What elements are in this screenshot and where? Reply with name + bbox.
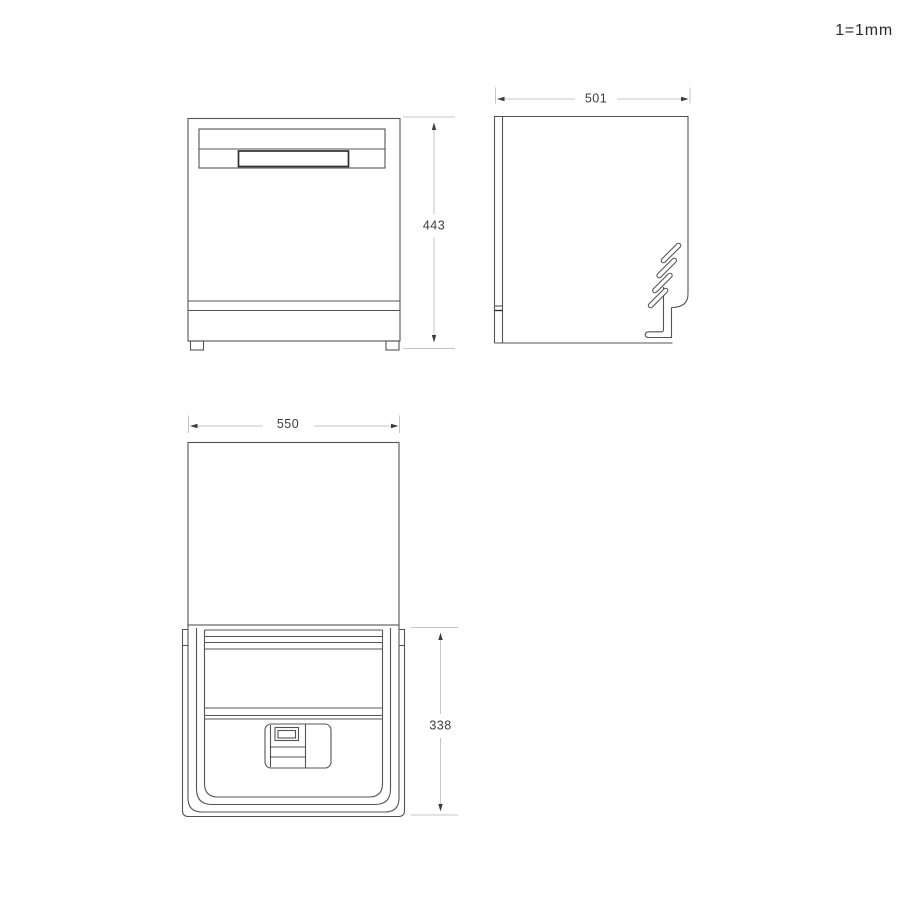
- arrow-up-icon: [432, 123, 436, 131]
- vent-slot-1-fill: [664, 246, 679, 261]
- dimension-label-door-depth: 338: [429, 718, 451, 732]
- door-handle: [239, 151, 349, 167]
- plan-body-outline: [188, 443, 399, 626]
- side-cabinet-outline: [495, 117, 689, 344]
- door-inner-panel-outline: [197, 628, 391, 805]
- door-top-edge-lines: [205, 630, 383, 649]
- top-view: [183, 443, 405, 817]
- technical-drawing-canvas: 443 501 550 338 1=1mm: [0, 0, 899, 899]
- door-open-outer-outline: [183, 630, 405, 817]
- arrow-right-icon: [681, 97, 689, 101]
- side-view: [495, 117, 689, 344]
- dimension-drawing-page: 443 501 550 338 1=1mm: [0, 0, 899, 899]
- scale-note: 1=1mm: [835, 22, 893, 39]
- door-liner-outline: [205, 630, 383, 797]
- dispenser-lid-inner: [278, 731, 296, 739]
- arrow-right-icon: [391, 424, 399, 428]
- vent-slot-2-fill: [659, 261, 674, 276]
- arrow-down-icon: [432, 335, 436, 343]
- foot-right: [386, 341, 399, 350]
- arrow-left-icon: [497, 97, 505, 101]
- dimension-label-depth: 501: [585, 91, 607, 105]
- arrow-up-icon: [438, 633, 442, 641]
- vent-slot-3-fill: [655, 276, 670, 291]
- vent-slots: [651, 246, 679, 306]
- front-cabinet-outline: [188, 119, 400, 342]
- dim-top-width: 550: [189, 416, 400, 434]
- dim-door-depth: 338: [411, 628, 459, 816]
- dimension-label-height: 443: [423, 218, 445, 232]
- dimension-label-width: 550: [277, 417, 299, 431]
- dim-side-depth: 501: [496, 88, 691, 106]
- front-view: [188, 119, 400, 351]
- detergent-dispenser: [265, 724, 331, 768]
- dim-front-height: 443: [403, 117, 455, 349]
- arrow-down-icon: [438, 804, 442, 812]
- foot-left: [191, 341, 204, 350]
- door-mid-edge-lines: [205, 708, 383, 719]
- arrow-left-icon: [190, 424, 198, 428]
